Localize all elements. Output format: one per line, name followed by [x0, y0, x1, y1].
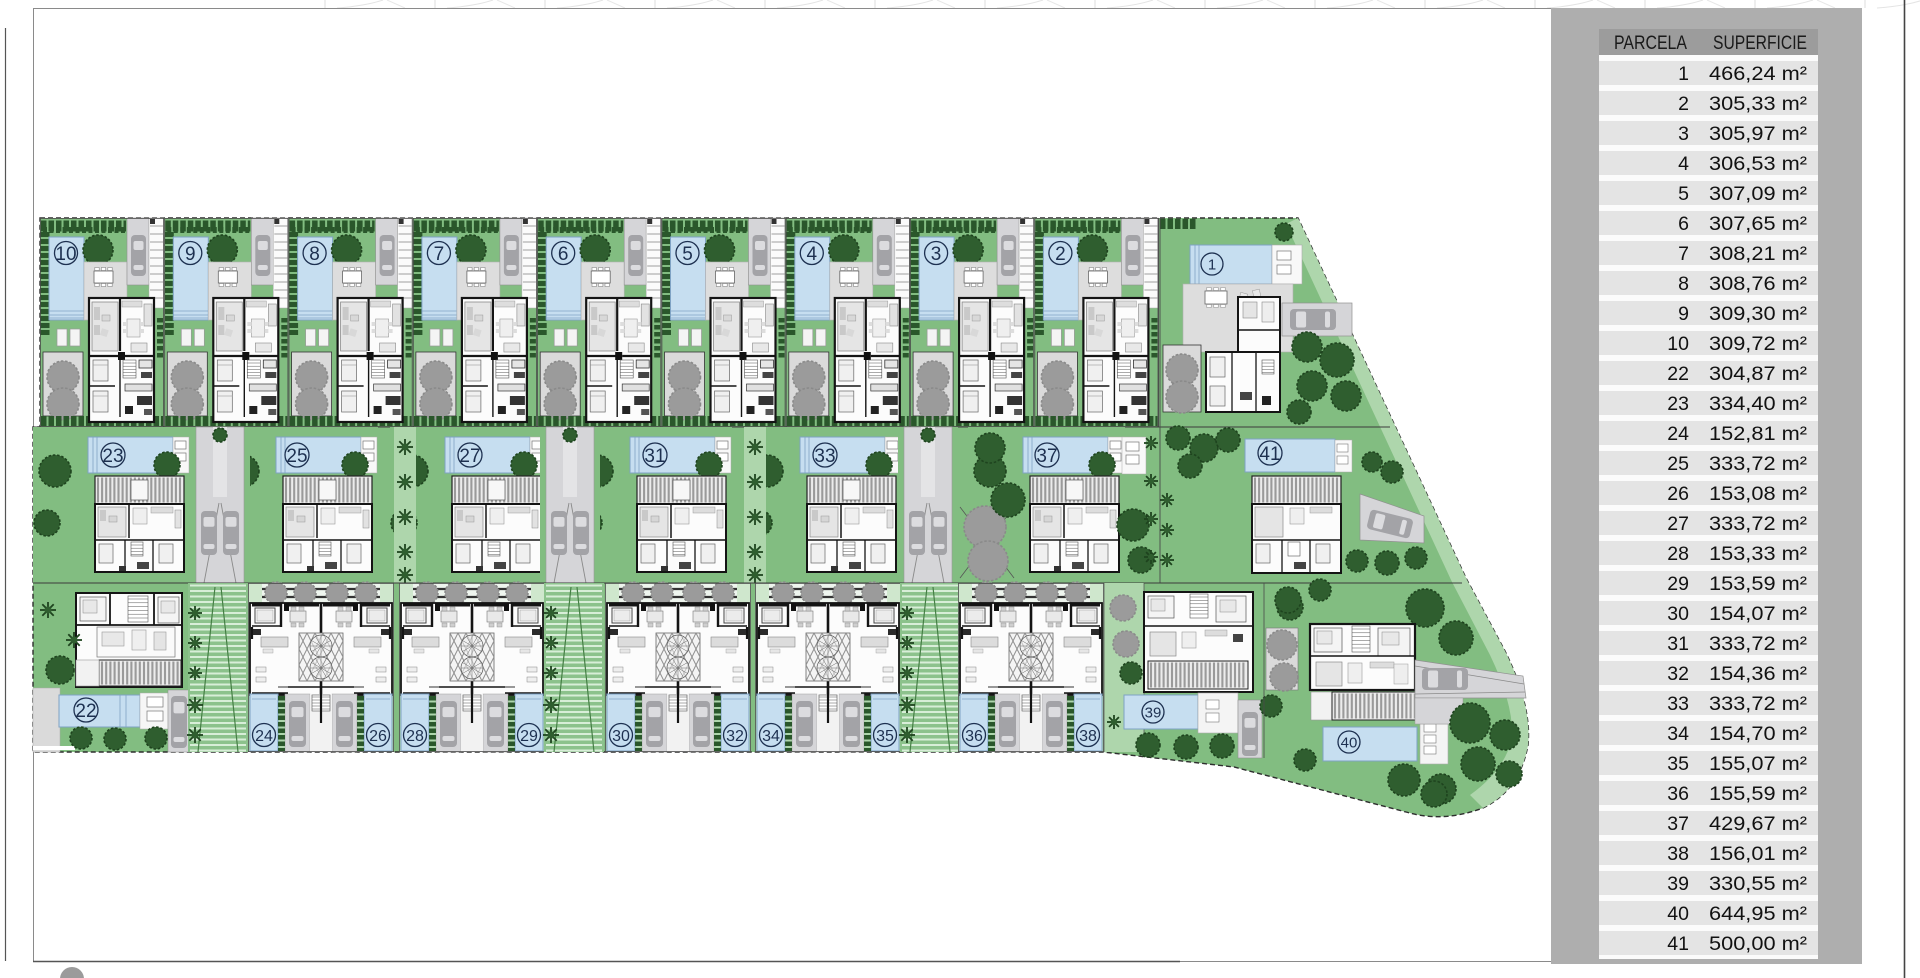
svg-text:40: 40 — [1667, 903, 1689, 925]
svg-text:31: 31 — [1667, 633, 1689, 655]
svg-text:29: 29 — [520, 728, 538, 745]
svg-text:7: 7 — [1678, 243, 1689, 265]
svg-text:333,72 m²: 333,72 m² — [1709, 453, 1808, 475]
svg-text:22: 22 — [1667, 363, 1689, 385]
svg-text:38: 38 — [1079, 728, 1097, 745]
svg-text:500,00 m²: 500,00 m² — [1709, 933, 1808, 955]
svg-text:9: 9 — [1678, 303, 1689, 325]
svg-text:429,67 m²: 429,67 m² — [1709, 813, 1808, 835]
svg-text:27: 27 — [1667, 513, 1689, 535]
svg-text:28: 28 — [406, 728, 424, 745]
svg-text:34: 34 — [762, 728, 780, 745]
svg-text:40: 40 — [1341, 734, 1358, 751]
svg-text:23: 23 — [102, 446, 123, 467]
svg-text:333,72 m²: 333,72 m² — [1709, 693, 1808, 715]
svg-text:36: 36 — [1667, 783, 1689, 805]
svg-text:34: 34 — [1667, 723, 1689, 745]
svg-text:41: 41 — [1667, 933, 1689, 955]
svg-text:644,95 m²: 644,95 m² — [1709, 903, 1808, 925]
svg-text:1: 1 — [1208, 256, 1216, 273]
svg-text:3: 3 — [931, 244, 942, 265]
svg-text:8: 8 — [309, 244, 320, 265]
svg-text:309,30 m²: 309,30 m² — [1709, 303, 1808, 325]
svg-text:153,59 m²: 153,59 m² — [1709, 573, 1808, 595]
svg-text:306,53 m²: 306,53 m² — [1709, 153, 1808, 175]
svg-text:5: 5 — [1678, 183, 1689, 205]
svg-text:PARCELA: PARCELA — [1614, 32, 1687, 54]
svg-text:155,59 m²: 155,59 m² — [1709, 783, 1808, 805]
svg-text:SUPERFICIE: SUPERFICIE — [1713, 32, 1807, 54]
svg-text:26: 26 — [369, 728, 387, 745]
svg-text:37: 37 — [1667, 813, 1689, 835]
svg-text:2: 2 — [1055, 244, 1066, 265]
svg-text:23: 23 — [1667, 393, 1689, 415]
svg-text:7: 7 — [434, 244, 445, 265]
svg-text:33: 33 — [814, 446, 835, 467]
svg-text:156,01 m²: 156,01 m² — [1709, 843, 1808, 865]
svg-text:307,65 m²: 307,65 m² — [1709, 213, 1808, 235]
svg-text:27: 27 — [459, 446, 480, 467]
svg-text:5: 5 — [682, 244, 693, 265]
svg-text:39: 39 — [1667, 873, 1689, 895]
svg-text:333,72 m²: 333,72 m² — [1709, 633, 1808, 655]
svg-text:26: 26 — [1667, 483, 1689, 505]
svg-text:6: 6 — [558, 244, 569, 265]
svg-text:35: 35 — [1667, 753, 1689, 775]
svg-text:24: 24 — [1667, 423, 1689, 445]
svg-text:25: 25 — [1667, 453, 1689, 475]
svg-text:39: 39 — [1145, 704, 1162, 721]
svg-text:32: 32 — [1667, 663, 1689, 685]
svg-text:308,21 m²: 308,21 m² — [1709, 243, 1808, 265]
svg-text:154,70 m²: 154,70 m² — [1709, 723, 1808, 745]
svg-text:30: 30 — [1667, 603, 1689, 625]
svg-text:305,33 m²: 305,33 m² — [1709, 93, 1808, 115]
svg-text:9: 9 — [185, 244, 196, 265]
svg-text:4: 4 — [1678, 153, 1689, 175]
svg-text:41: 41 — [1259, 444, 1280, 465]
svg-text:4: 4 — [807, 244, 818, 265]
svg-text:466,24 m²: 466,24 m² — [1709, 63, 1808, 85]
svg-text:330,55 m²: 330,55 m² — [1709, 873, 1808, 895]
svg-text:33: 33 — [1667, 693, 1689, 715]
svg-text:153,08 m²: 153,08 m² — [1709, 483, 1808, 505]
svg-text:152,81 m²: 152,81 m² — [1709, 423, 1808, 445]
svg-text:37: 37 — [1036, 446, 1057, 467]
svg-text:2: 2 — [1678, 93, 1689, 115]
svg-text:22: 22 — [75, 701, 96, 722]
svg-text:31: 31 — [644, 446, 665, 467]
svg-text:154,36 m²: 154,36 m² — [1709, 663, 1808, 685]
svg-text:307,09 m²: 307,09 m² — [1709, 183, 1808, 205]
svg-text:304,87 m²: 304,87 m² — [1709, 363, 1808, 385]
svg-text:308,76 m²: 308,76 m² — [1709, 273, 1808, 295]
svg-text:8: 8 — [1678, 273, 1689, 295]
svg-text:36: 36 — [965, 728, 983, 745]
svg-text:309,72 m²: 309,72 m² — [1709, 333, 1808, 355]
svg-text:30: 30 — [612, 728, 630, 745]
svg-text:24: 24 — [255, 728, 273, 745]
svg-text:10: 10 — [55, 244, 76, 265]
svg-text:6: 6 — [1678, 213, 1689, 235]
svg-text:154,07 m²: 154,07 m² — [1709, 603, 1808, 625]
svg-text:1: 1 — [1678, 63, 1689, 85]
svg-text:3: 3 — [1678, 123, 1689, 145]
svg-text:35: 35 — [876, 728, 894, 745]
svg-text:10: 10 — [1667, 333, 1689, 355]
svg-text:333,72 m²: 333,72 m² — [1709, 513, 1808, 535]
svg-text:29: 29 — [1667, 573, 1689, 595]
svg-text:334,40 m²: 334,40 m² — [1709, 393, 1808, 415]
svg-text:38: 38 — [1667, 843, 1689, 865]
svg-text:32: 32 — [726, 728, 744, 745]
svg-text:305,97 m²: 305,97 m² — [1709, 123, 1808, 145]
svg-text:25: 25 — [286, 446, 307, 467]
svg-text:28: 28 — [1667, 543, 1689, 565]
svg-text:155,07 m²: 155,07 m² — [1709, 753, 1808, 775]
svg-text:153,33 m²: 153,33 m² — [1709, 543, 1808, 565]
